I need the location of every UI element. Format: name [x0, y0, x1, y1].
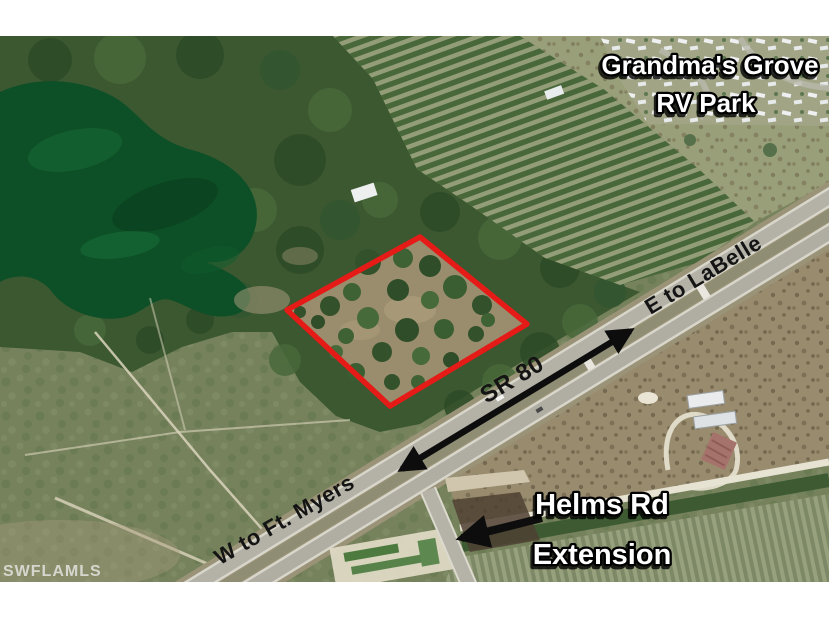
helms-rd-label-line1: Helms Rd [535, 489, 669, 521]
aerial-photo: Grandma's Grove RV Park E to LaBelle SR … [0, 0, 829, 621]
helms-rd-label-line2: Extension [533, 539, 672, 571]
listing-photo-frame: Grandma's Grove RV Park E to LaBelle SR … [0, 0, 829, 621]
rv-park-label-line1: Grandma's Grove [601, 50, 818, 80]
mls-watermark: SWFLAMLS [3, 563, 102, 580]
rv-park-label-line2: RV Park [656, 88, 756, 118]
